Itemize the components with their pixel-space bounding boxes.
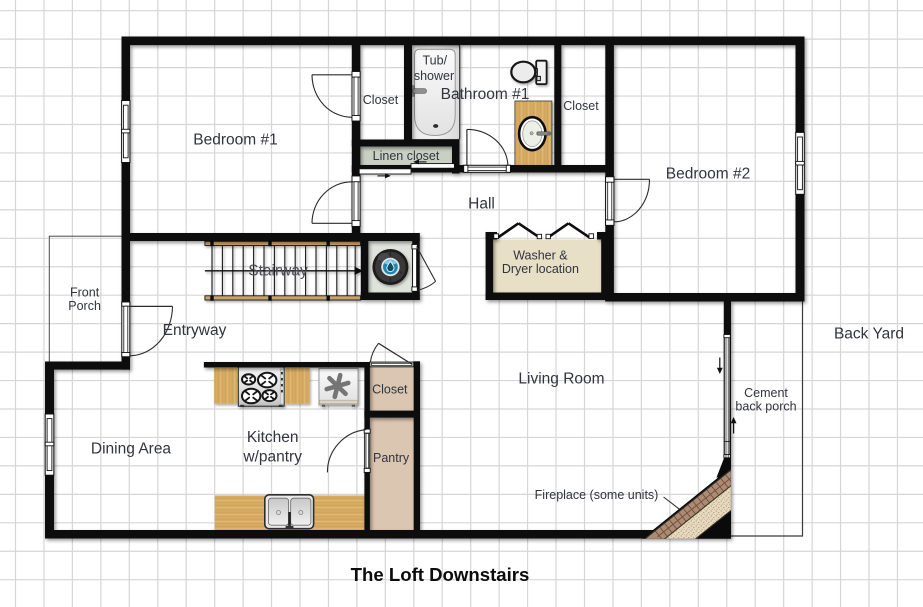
svg-text:Closet: Closet xyxy=(563,99,599,113)
svg-text:shower: shower xyxy=(414,69,454,83)
svg-text:Cement: Cement xyxy=(744,386,788,400)
svg-text:Bedroom #1: Bedroom #1 xyxy=(193,132,277,149)
svg-text:Closet: Closet xyxy=(372,382,408,396)
svg-text:Kitchen: Kitchen xyxy=(247,429,299,446)
svg-text:Living Room: Living Room xyxy=(518,370,604,387)
svg-text:Front: Front xyxy=(70,285,100,299)
svg-text:Fireplace (some units): Fireplace (some units) xyxy=(535,488,659,502)
svg-text:Linen closet: Linen closet xyxy=(373,149,440,163)
svg-text:Stairway: Stairway xyxy=(248,262,308,279)
svg-text:Porch: Porch xyxy=(68,299,101,313)
svg-text:Closet: Closet xyxy=(363,93,399,107)
svg-text:Dining Area: Dining Area xyxy=(91,440,172,457)
svg-text:Washer &: Washer & xyxy=(513,248,568,262)
svg-text:Bedroom #2: Bedroom #2 xyxy=(666,165,750,182)
svg-text:The Loft Downstairs: The Loft Downstairs xyxy=(351,564,530,585)
svg-text:Hall: Hall xyxy=(468,195,495,212)
svg-text:Bathroom #1: Bathroom #1 xyxy=(441,86,530,103)
svg-text:Dryer location: Dryer location xyxy=(502,262,579,276)
svg-text:back porch: back porch xyxy=(735,399,796,413)
svg-text:Entryway: Entryway xyxy=(163,322,227,339)
svg-text:Tub/: Tub/ xyxy=(423,53,448,67)
svg-text:Pantry: Pantry xyxy=(373,451,410,465)
svg-text:w/pantry: w/pantry xyxy=(242,448,302,465)
svg-text:Back Yard: Back Yard xyxy=(834,325,904,342)
